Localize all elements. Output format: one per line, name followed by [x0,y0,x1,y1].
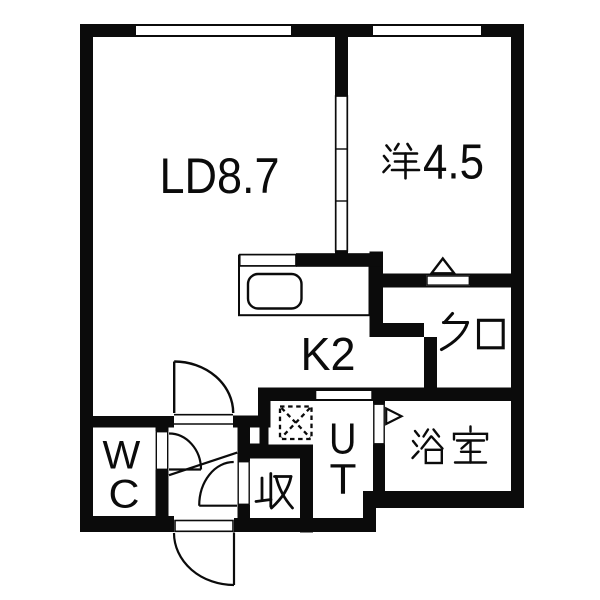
svg-text:W: W [103,433,141,477]
svg-text:C: C [109,473,140,517]
svg-text:4.5: 4.5 [423,135,484,189]
svg-text:T: T [330,456,357,504]
svg-text:LD8.7: LD8.7 [160,148,280,204]
svg-text:K2: K2 [301,328,356,380]
